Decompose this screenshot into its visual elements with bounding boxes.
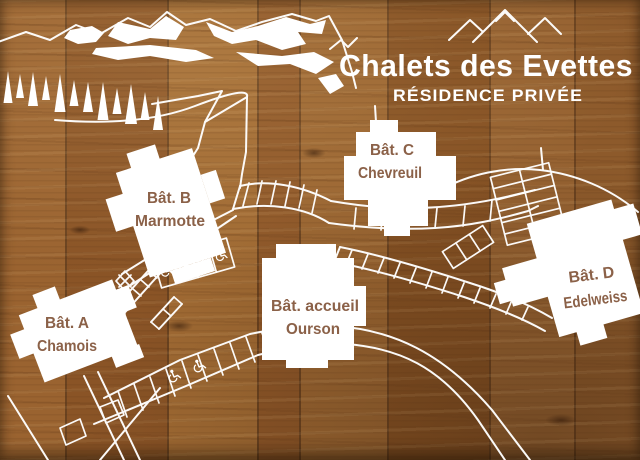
- building-accueil-label: Ourson: [286, 321, 340, 338]
- building-c-label: Bât. C: [370, 142, 414, 159]
- site-map: Chalets des Evettes RÉSIDENCE PRIVÉE: [0, 0, 640, 460]
- building-a: Bât. A Chamois: [0, 262, 154, 399]
- building-d: Bât. D Edelweiss: [481, 194, 640, 364]
- building-accueil-label: Bât. accueil: [271, 298, 359, 315]
- parking-strip: [442, 226, 493, 269]
- building-c-label: Chevreuil: [358, 165, 422, 182]
- building-a-label: Bât. A: [45, 315, 89, 332]
- sign-title: Chalets des Evettes: [339, 48, 633, 83]
- building-b-label: Bât. B: [147, 190, 191, 207]
- snow-patches: [64, 16, 344, 94]
- sign-subtitle: RÉSIDENCE PRIVÉE: [393, 86, 583, 105]
- mountain-peaks-icon: [449, 10, 561, 42]
- building-b-label: Marmotte: [135, 213, 205, 230]
- building-a-label: Chamois: [37, 338, 97, 355]
- building-accueil: Bât. accueil Ourson: [262, 244, 366, 368]
- wooden-site-map-sign: Chalets des Evettes RÉSIDENCE PRIVÉE: [0, 0, 640, 460]
- building-c: Bât. C Chevreuil: [344, 120, 456, 236]
